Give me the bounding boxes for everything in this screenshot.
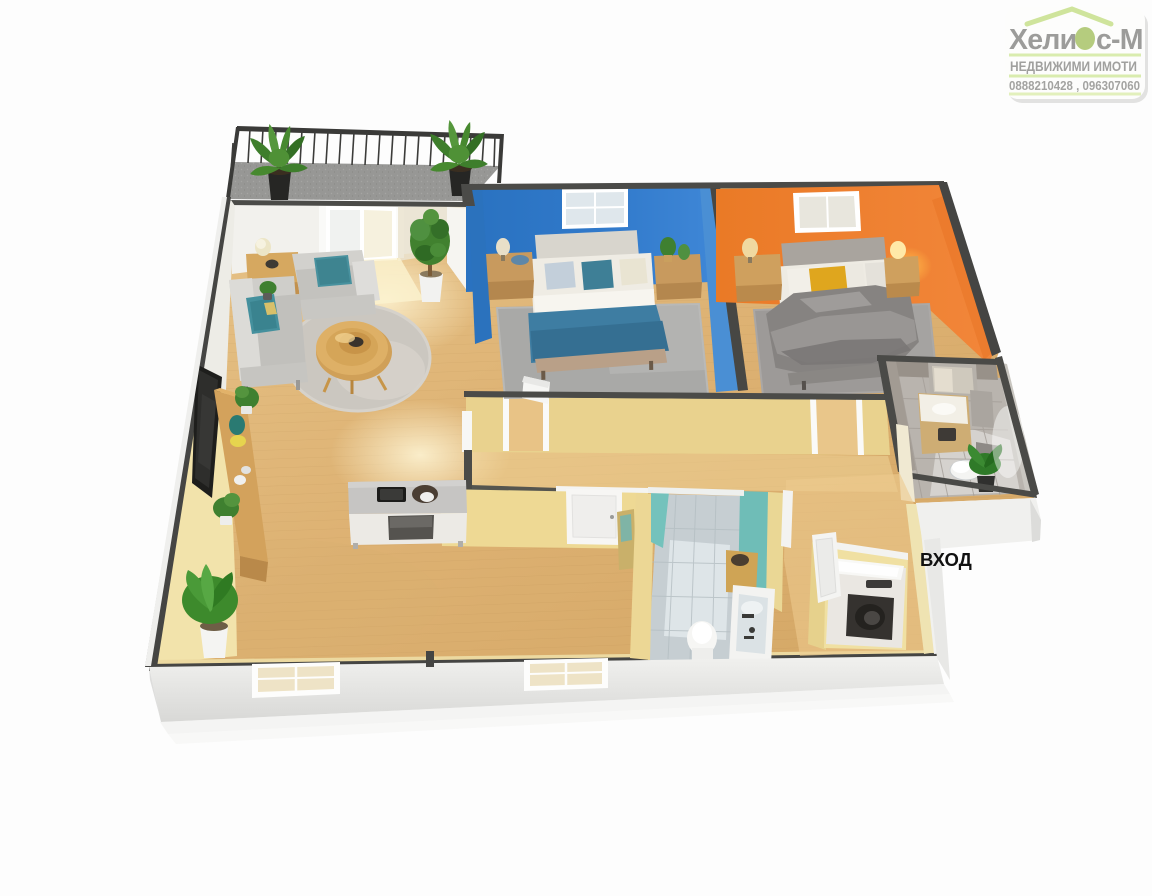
- svg-text:с-М: с-М: [1096, 24, 1143, 56]
- svg-text:0888210428 , 096307060: 0888210428 , 096307060: [1009, 78, 1140, 93]
- svg-text:Хели: Хели: [1009, 24, 1076, 56]
- svg-text:НЕДВИЖИМИ ИМОТИ: НЕДВИЖИМИ ИМОТИ: [1010, 59, 1137, 74]
- svg-text:ВХОД: ВХОД: [920, 549, 972, 570]
